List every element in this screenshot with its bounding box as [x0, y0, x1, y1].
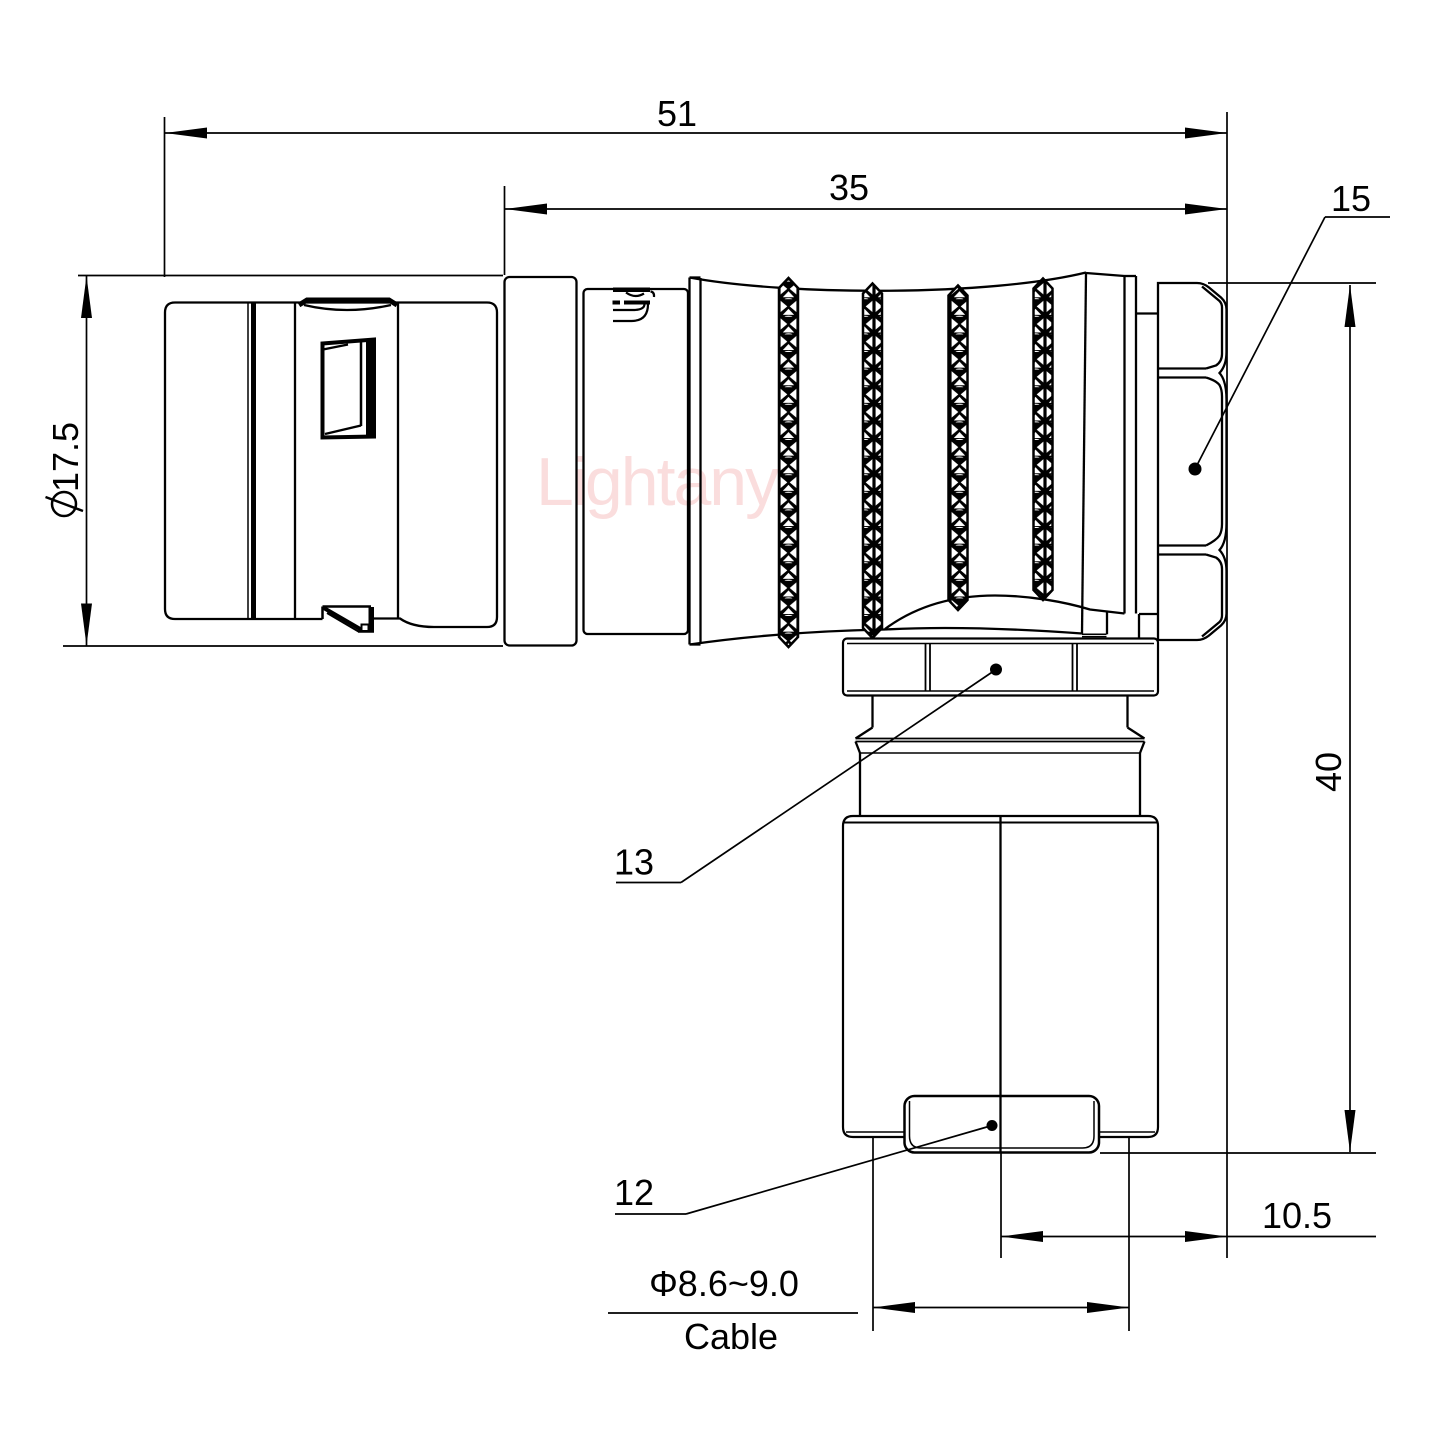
- svg-text:13: 13: [614, 842, 654, 883]
- svg-text:Φ8.6~9.0: Φ8.6~9.0: [649, 1263, 799, 1304]
- svg-text:12: 12: [614, 1172, 654, 1213]
- svg-text:Lightany: Lightany: [536, 444, 779, 520]
- svg-text:Cable: Cable: [684, 1316, 778, 1357]
- svg-text:17.5: 17.5: [45, 422, 86, 492]
- svg-text:10.5: 10.5: [1262, 1195, 1332, 1236]
- svg-text:35: 35: [829, 167, 869, 208]
- svg-text:15: 15: [1331, 178, 1371, 219]
- svg-text:51: 51: [657, 93, 697, 134]
- svg-text:40: 40: [1308, 752, 1349, 792]
